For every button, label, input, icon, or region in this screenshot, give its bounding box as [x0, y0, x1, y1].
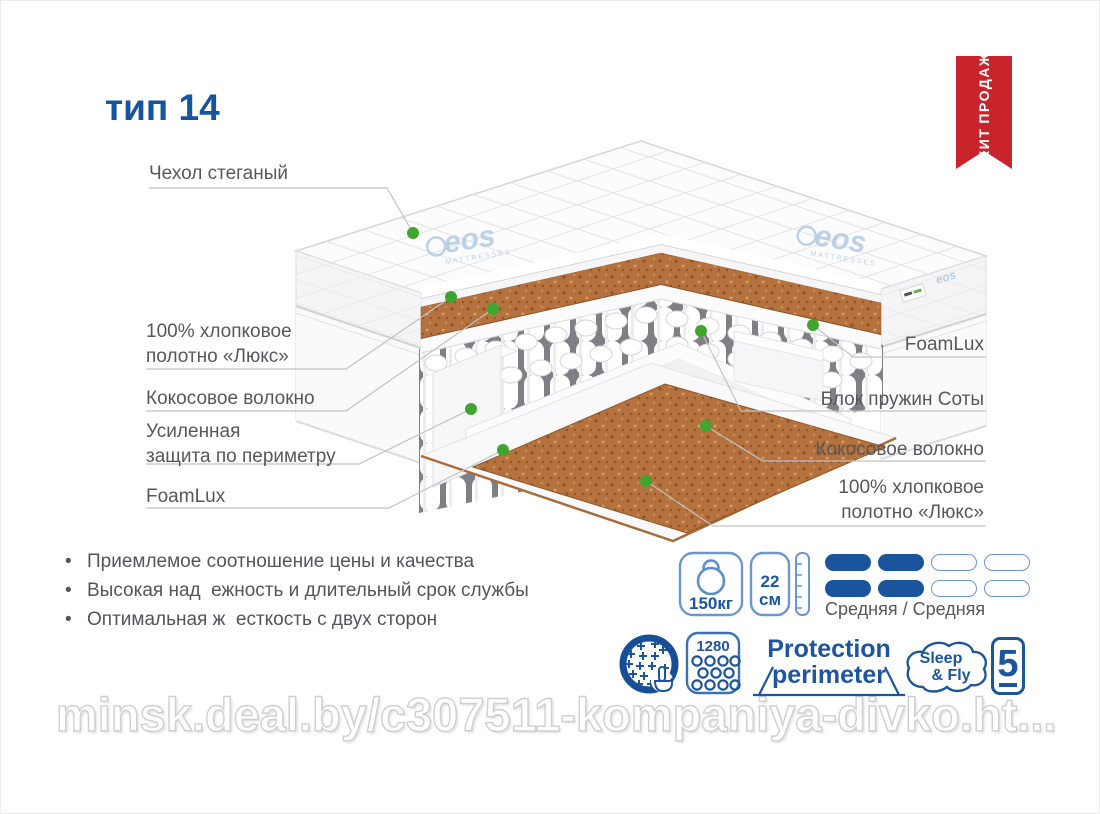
- callout-coco-top-label: Кокосовое волокно: [146, 386, 315, 411]
- callout-dot: [695, 325, 707, 337]
- firmness-row: [825, 554, 1031, 571]
- callout-cover-label: Чехол стеганый: [149, 161, 288, 186]
- firmness-label: Средняя / Средняя: [825, 599, 985, 620]
- protection-perimeter-logo: Protection perimeter: [747, 631, 911, 701]
- feature-list: Приемлемое соотношение цены и качества В…: [61, 547, 529, 634]
- callout-dot: [640, 475, 652, 487]
- callout-dot: [407, 227, 419, 239]
- callout-perimeter-label: Усиленная защита по периметру: [146, 419, 336, 469]
- sleep-and-fly-logo: Sleep & Fly: [899, 635, 987, 697]
- callout-coco-bottom-label: Кокосовое волокно: [815, 437, 984, 462]
- callout-springs-label: Блок пружин Соты: [821, 387, 984, 412]
- warranty-icon: 5: [991, 637, 1025, 695]
- firmness-pill: [825, 554, 871, 571]
- callout-cotton-top-label: 100% хлопковое полотно «Люкс»: [146, 319, 292, 369]
- springs-count-icon: 1280: [685, 631, 741, 695]
- callout-dot: [700, 420, 712, 432]
- micro-springs-icon: [615, 630, 685, 700]
- ruler-icon: [796, 553, 809, 615]
- ribbon-word-2: ПРОДАЖ: [976, 52, 992, 124]
- warranty-underline: [999, 683, 1017, 687]
- firmness-pill: [984, 580, 1030, 597]
- callout-foamlux-right-label: FoamLux: [905, 332, 984, 357]
- callout-dot: [497, 444, 509, 456]
- page-title: тип 14: [105, 87, 220, 129]
- feature-item: Приемлемое соотношение цены и качества: [61, 547, 529, 576]
- protection-line2: perimeter: [772, 661, 886, 689]
- callout-dot: [807, 319, 819, 331]
- firmness-pill: [825, 580, 871, 597]
- firmness-pill: [984, 554, 1030, 571]
- height-value: 22: [761, 572, 780, 591]
- firmness-row: [825, 580, 1031, 597]
- bestseller-ribbon-text: ХИТ ПРОДАЖ: [956, 50, 1012, 162]
- height-icon: 22 см: [749, 551, 811, 617]
- firmness-pill: [931, 554, 977, 571]
- max-load-value: 150кг: [689, 594, 733, 613]
- protection-line1: Protection: [767, 635, 891, 663]
- springs-count-value: 1280: [696, 638, 729, 655]
- callout-cotton-bottom-label: 100% хлопковое полотно «Люкс»: [838, 475, 984, 525]
- max-load-icon: 150кг: [678, 551, 744, 617]
- sleepfly-line1: Sleep: [920, 650, 963, 667]
- product-card: eos MATTRESSES eos MATTRESSES: [0, 0, 1100, 814]
- callout-dot: [487, 303, 499, 315]
- feature-item: Высокая над ежность и длительный срок сл…: [61, 576, 529, 605]
- firmness-pill: [878, 554, 924, 571]
- callout-dot: [465, 403, 477, 415]
- firmness-pill: [878, 580, 924, 597]
- feature-item: Оптимальная ж есткость с двух сторон: [61, 605, 529, 634]
- callout-dot: [445, 291, 457, 303]
- height-unit: см: [759, 590, 781, 609]
- callout-foamlux-left-label: FoamLux: [146, 484, 225, 509]
- firmness-pill: [931, 580, 977, 597]
- sleepfly-line2: & Fly: [931, 667, 970, 684]
- warranty-years: 5: [997, 645, 1018, 683]
